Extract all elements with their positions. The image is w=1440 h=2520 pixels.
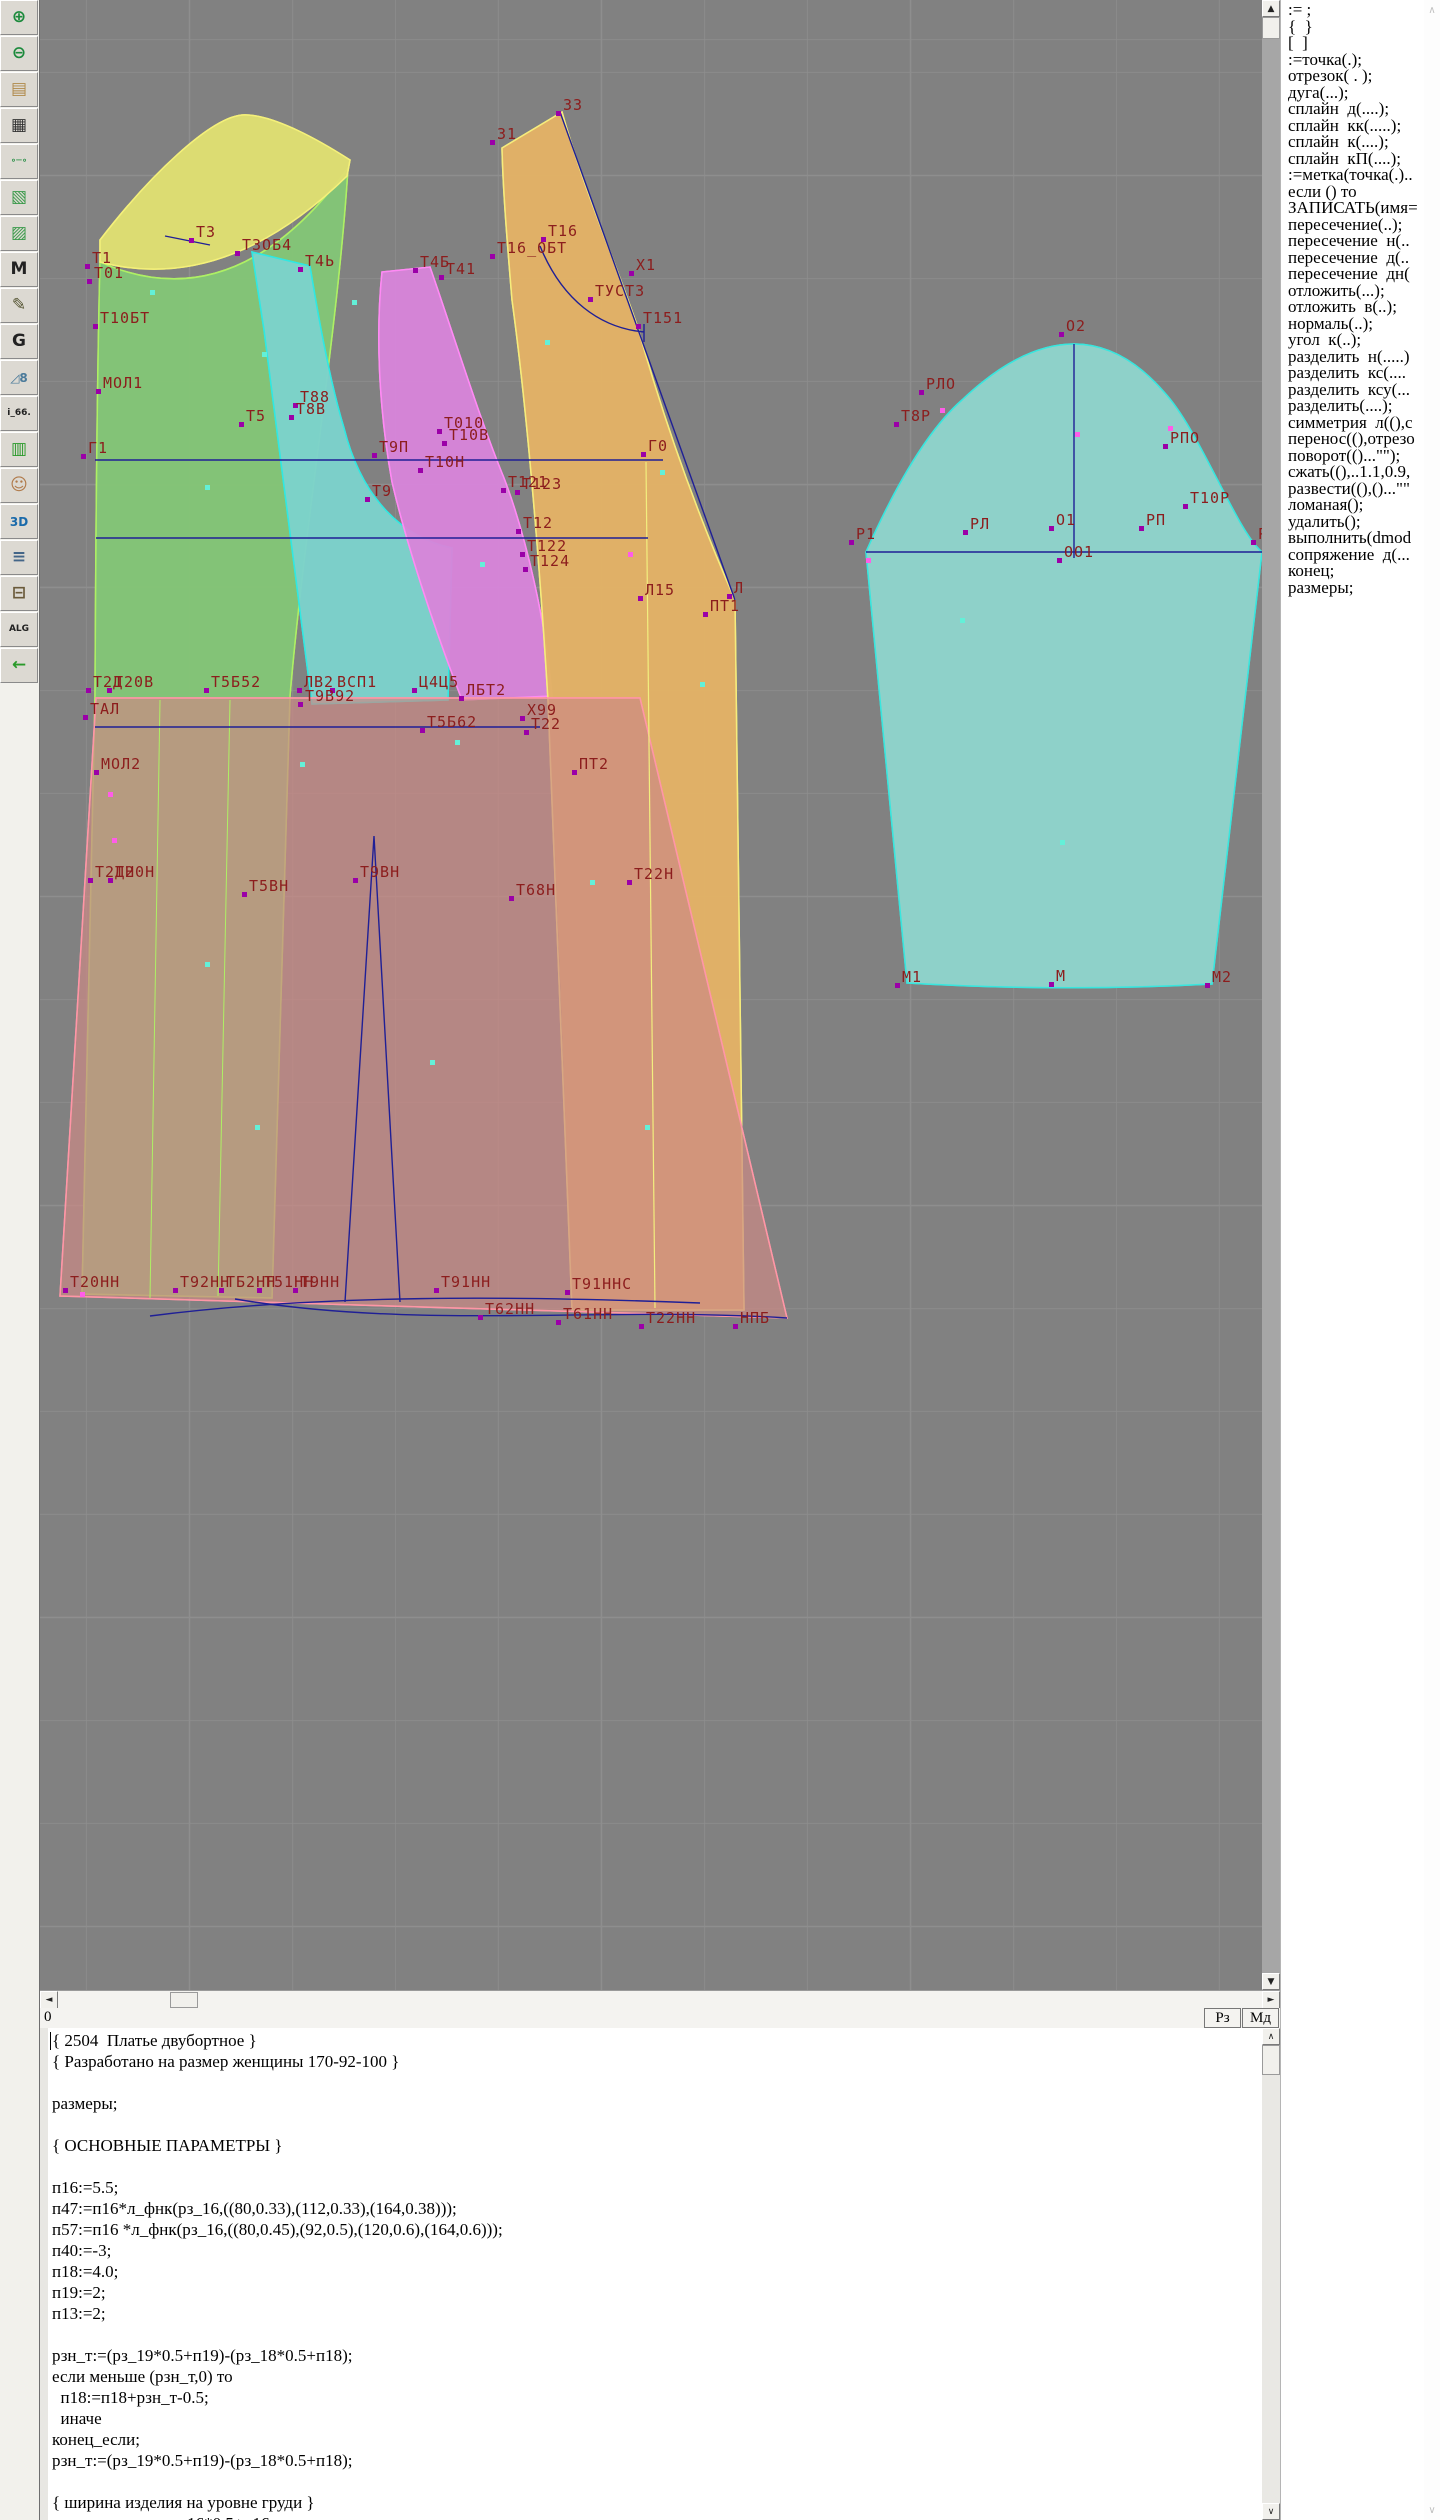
- pattern-point[interactable]: [960, 618, 965, 623]
- status-bar: 0 Рз Мд: [40, 2008, 1280, 2028]
- measure-tool-icon: ∘─∘: [11, 157, 28, 166]
- script-line: [52, 2156, 503, 2177]
- point-label: ТАЛ: [90, 700, 120, 718]
- point-label: Т4Ь: [305, 252, 335, 270]
- pattern-m-icon: M: [11, 261, 28, 278]
- point-label: М2: [1212, 968, 1232, 986]
- pattern-point[interactable]: [83, 715, 88, 720]
- pattern-point[interactable]: [556, 111, 561, 116]
- script-editor[interactable]: { 2504 Платье двубортное }{ Разработано …: [40, 2028, 1262, 2520]
- pattern-point[interactable]: [545, 340, 550, 345]
- point-label: Т16_ОБТ: [497, 239, 567, 257]
- toolbar-pattern-m-button[interactable]: M: [0, 252, 38, 287]
- command-list-panel: := ;{ }[ ]:=точка(.);отрезок( . );дуга(.…: [1280, 0, 1440, 2520]
- pattern-point[interactable]: [509, 896, 514, 901]
- pattern-point[interactable]: [1251, 540, 1256, 545]
- pattern-point[interactable]: [565, 1290, 570, 1295]
- point-label: 33: [563, 96, 583, 114]
- point-label: Т91НН: [441, 1273, 491, 1291]
- point-label: Т20В: [114, 673, 154, 691]
- point-label: Т9ВН: [360, 863, 400, 881]
- pattern-point[interactable]: [94, 770, 99, 775]
- pattern-point[interactable]: [434, 1288, 439, 1293]
- ruler-8-icon: ◿8: [10, 372, 28, 384]
- script-line: рзн_т:=(рз_19*0.5+п19)-(рз_18*0.5+п18);: [52, 2450, 503, 2471]
- pattern-point[interactable]: [523, 567, 528, 572]
- point-label: Т22Н: [634, 865, 674, 883]
- canvas-vscroll-thumb[interactable]: [1262, 17, 1280, 39]
- md-button[interactable]: Мд: [1242, 2008, 1279, 2028]
- pattern-point[interactable]: [112, 838, 117, 843]
- pattern-point[interactable]: [189, 238, 194, 243]
- script-line: [52, 2114, 503, 2135]
- toolbar-zoom-in-button[interactable]: ⊕: [0, 0, 38, 35]
- drawing-canvas[interactable]: Т3Т1Т01Т3ОБ4Т4ЬТ10БТМОЛ1Т5Т88Т8ВГ1Т9ПТ01…: [40, 0, 1262, 1990]
- canvas-scroll-up-icon[interactable]: ▲: [1262, 0, 1280, 17]
- pattern-point[interactable]: [1183, 504, 1188, 509]
- point-label: Г1: [88, 439, 108, 457]
- point-label: Т9В92: [305, 687, 355, 705]
- pattern-point[interactable]: [239, 422, 244, 427]
- pattern-point[interactable]: [418, 468, 423, 473]
- i66-file-icon: i_66.: [7, 409, 31, 418]
- pattern-point[interactable]: [1205, 983, 1210, 988]
- pattern-point[interactable]: [849, 540, 854, 545]
- script-line: { ширина изделия на уровне груди }: [52, 2492, 503, 2513]
- point-label: МОЛ2: [101, 755, 141, 773]
- editor-scroll-down-icon[interactable]: ∨: [1262, 2503, 1280, 2520]
- pattern-point[interactable]: [262, 352, 267, 357]
- script-line: [52, 2471, 503, 2492]
- toolbar-exit-button[interactable]: ←: [0, 648, 38, 683]
- alg-file-icon: ALG: [9, 625, 29, 634]
- pattern-point[interactable]: [455, 740, 460, 745]
- pattern-point[interactable]: [353, 878, 358, 883]
- point-label: Х1: [636, 256, 656, 274]
- point-label: М1: [902, 968, 922, 986]
- pattern-point[interactable]: [1059, 332, 1064, 337]
- pattern-point[interactable]: [93, 324, 98, 329]
- pattern-point[interactable]: [1049, 526, 1054, 531]
- pattern-point[interactable]: [638, 596, 643, 601]
- point-label: Т22: [531, 715, 561, 733]
- pattern-point[interactable]: [297, 688, 302, 693]
- pattern-point[interactable]: [352, 300, 357, 305]
- pattern-point[interactable]: [150, 290, 155, 295]
- script-line: { Разработано на размер женщины 170-92-1…: [52, 2051, 503, 2072]
- pattern-point[interactable]: [866, 558, 871, 563]
- point-label: Т5ВН: [249, 877, 289, 895]
- script-line: если меньше (рзн_т,0) то: [52, 2366, 503, 2387]
- commands-scroll-up-icon[interactable]: ∧: [1424, 2, 1440, 18]
- point-label: Т12: [523, 514, 553, 532]
- pattern-point[interactable]: [439, 275, 444, 280]
- canvas-hscrollbar[interactable]: ◄ ►: [40, 1990, 1280, 2008]
- point-label: Л15: [645, 581, 675, 599]
- pattern-point[interactable]: [641, 452, 646, 457]
- size-table-icon: ▥: [11, 441, 27, 458]
- command-list: := ;{ }[ ]:=точка(.);отрезок( . );дуга(.…: [1281, 0, 1440, 596]
- canvas-scroll-down-icon[interactable]: ▼: [1262, 1973, 1280, 1990]
- toolbar-i66-file-button[interactable]: i_66.: [0, 396, 38, 431]
- pattern-point[interactable]: [588, 297, 593, 302]
- point-label: Т61НН: [563, 1305, 613, 1323]
- command-list-scrollbar[interactable]: ∧ ∨: [1424, 0, 1440, 2520]
- pattern-point[interactable]: [627, 880, 632, 885]
- script-line: п13:=2;: [52, 2303, 503, 2324]
- pattern-point[interactable]: [205, 485, 210, 490]
- point-label: Т41: [446, 260, 476, 278]
- canvas-vscrollbar[interactable]: ▲ ▼: [1262, 0, 1280, 1990]
- pattern-point[interactable]: [1060, 840, 1065, 845]
- pattern-point[interactable]: [86, 688, 91, 693]
- pattern-point[interactable]: [645, 1125, 650, 1130]
- pattern-point[interactable]: [572, 770, 577, 775]
- canvas-scroll-left-icon[interactable]: ◄: [40, 1991, 58, 2009]
- point-label: Т62НН: [485, 1300, 535, 1318]
- pattern-point[interactable]: [628, 552, 633, 557]
- drafting-tools-icon: ✎: [12, 297, 26, 314]
- pattern-point[interactable]: [516, 529, 521, 534]
- point-label: ТУСТ3: [595, 282, 645, 300]
- script-line: { 2504 Платье двубортное }: [52, 2030, 503, 2051]
- point-label: Л: [734, 579, 744, 597]
- pattern-point[interactable]: [963, 530, 968, 535]
- script-line: п57:=п16 *л_фнк(рз_16,((80,0.45),(92,0.5…: [52, 2219, 503, 2240]
- toolbar-size-table-button[interactable]: ▥: [0, 432, 38, 467]
- point-label: М: [1056, 967, 1066, 985]
- pattern-point[interactable]: [80, 1292, 85, 1297]
- pattern-point[interactable]: [442, 441, 447, 446]
- pattern-point[interactable]: [639, 1324, 644, 1329]
- point-label: Т10БТ: [100, 309, 150, 327]
- toolbar-pattern-outline-button[interactable]: ▨: [0, 216, 38, 251]
- pattern-point[interactable]: [437, 429, 442, 434]
- toolbar-ruler-8-button[interactable]: ◿8: [0, 360, 38, 395]
- script-line: иначе: [52, 2408, 503, 2429]
- left-toolbar: ⊕⊖▤▦∘─∘▧▨M✎G◿8i_66.▥☺3D≡⊟ALG←: [0, 0, 40, 2520]
- point-label: Т8Р: [901, 407, 931, 425]
- pattern-point[interactable]: [420, 728, 425, 733]
- point-label: Т9П: [379, 438, 409, 456]
- pattern-point[interactable]: [1139, 526, 1144, 531]
- script-line: [52, 2324, 503, 2345]
- point-label: Т10Н: [425, 453, 465, 471]
- point-label: РЛ: [970, 515, 990, 533]
- point-label: О2: [1066, 317, 1086, 335]
- pattern-point[interactable]: [81, 454, 86, 459]
- script-line: [52, 2072, 503, 2093]
- point-label: ОО1: [1064, 543, 1094, 561]
- point-label: Т20Н: [115, 863, 155, 881]
- books-icon: ⊟: [12, 585, 26, 602]
- toolbar-measure-tool-button[interactable]: ∘─∘: [0, 144, 38, 179]
- three-d-icon: 3D: [10, 516, 28, 528]
- pattern-point[interactable]: [1049, 982, 1054, 987]
- pattern-point[interactable]: [413, 268, 418, 273]
- point-label: РП: [1146, 511, 1166, 529]
- pattern-point[interactable]: [242, 892, 247, 897]
- pattern-point[interactable]: [629, 271, 634, 276]
- canvas-scroll-right-icon[interactable]: ►: [1262, 1991, 1280, 2009]
- pattern-point[interactable]: [919, 390, 924, 395]
- script-line: п19:=2;: [52, 2282, 503, 2303]
- pattern-point[interactable]: [372, 453, 377, 458]
- pattern-point[interactable]: [894, 422, 899, 427]
- script-line: п18:=4.0;: [52, 2261, 503, 2282]
- toolbar-three-d-button[interactable]: 3D: [0, 504, 38, 539]
- toolbar-grid-button[interactable]: ▦: [0, 108, 38, 143]
- script-line: { ОСНОВНЫЕ ПАРАМЕТРЫ }: [52, 2135, 503, 2156]
- pattern-point[interactable]: [520, 716, 525, 721]
- pattern-point[interactable]: [895, 983, 900, 988]
- point-label: ПТ1: [710, 597, 740, 615]
- pattern-point[interactable]: [235, 251, 240, 256]
- pattern-point[interactable]: [255, 1125, 260, 1130]
- point-label: Т9: [372, 482, 392, 500]
- sketch-map-icon: ▧: [11, 189, 27, 206]
- pattern-point[interactable]: [96, 389, 101, 394]
- script-line: рзн_т:=(рз_19*0.5+п19)-(рз_18*0.5+п18);: [52, 2345, 503, 2366]
- point-label: ПТ2: [579, 755, 609, 773]
- command-item[interactable]: размеры;: [1281, 580, 1440, 597]
- pattern-point[interactable]: [490, 254, 495, 259]
- pattern-point[interactable]: [108, 792, 113, 797]
- grid-icon: ▦: [11, 117, 27, 134]
- pattern-point[interactable]: [478, 1315, 483, 1320]
- point-label: Т01: [94, 264, 124, 282]
- point-label: О1: [1056, 511, 1076, 529]
- point-label: Т5: [246, 407, 266, 425]
- point-label: Г0: [648, 437, 668, 455]
- point-label: Т20НН: [70, 1273, 120, 1291]
- point-label: Т22НН: [646, 1309, 696, 1327]
- zoom-in-icon: ⊕: [12, 9, 26, 26]
- point-label: Т68Н: [516, 881, 556, 899]
- pattern-point[interactable]: [636, 324, 641, 329]
- script-line: п16:=5.5;: [52, 2177, 503, 2198]
- hatch-sleeve: [866, 344, 1262, 988]
- pattern-drawing: Т3Т1Т01Т3ОБ4Т4ЬТ10БТМОЛ1Т5Т88Т8ВГ1Т9ПТ01…: [40, 0, 1262, 1990]
- editor-vscroll-thumb[interactable]: [1262, 2045, 1280, 2075]
- pattern-point[interactable]: [88, 878, 93, 883]
- pattern-point[interactable]: [490, 140, 495, 145]
- point-label: Ц4Ц5: [419, 673, 459, 691]
- point-label: Р1: [856, 525, 876, 543]
- point-label: НПБ: [740, 1309, 770, 1327]
- pattern-point[interactable]: [590, 880, 595, 885]
- point-label: Т151: [643, 309, 683, 327]
- commands-scroll-down-icon[interactable]: ∨: [1424, 2502, 1440, 2518]
- point-label: Т16: [548, 222, 578, 240]
- portrait-icon: ☺: [10, 477, 28, 494]
- rz-button[interactable]: Рз: [1204, 2008, 1241, 2028]
- pattern-point[interactable]: [430, 1060, 435, 1065]
- point-label: ЛБТ2: [466, 681, 506, 699]
- pattern-point[interactable]: [524, 730, 529, 735]
- g-document-icon: G: [12, 333, 26, 350]
- point-label: Т3ОБ4: [242, 236, 292, 254]
- toolbar-text-list-button[interactable]: ≡: [0, 540, 38, 575]
- toolbar-zoom-out-button[interactable]: ⊖: [0, 36, 38, 71]
- pattern-point[interactable]: [556, 1320, 561, 1325]
- pattern-outline-icon: ▨: [11, 225, 27, 242]
- point-label: Т92НН: [180, 1273, 230, 1291]
- pattern-sheet-icon: ▤: [11, 81, 27, 98]
- editor-gutter: [40, 2028, 48, 2520]
- text-list-icon: ≡: [12, 549, 26, 566]
- script-line: п40:=-3;: [52, 2240, 503, 2261]
- point-label: МОЛ1: [103, 374, 143, 392]
- point-label: Т9НН: [300, 1273, 340, 1291]
- toolbar-books-button[interactable]: ⊟: [0, 576, 38, 611]
- pattern-point[interactable]: [501, 488, 506, 493]
- pattern-point[interactable]: [940, 408, 945, 413]
- pattern-point[interactable]: [1075, 432, 1080, 437]
- pattern-point[interactable]: [520, 552, 525, 557]
- script-line: п47:=п16*л_фнк(рз_16,((80,0.33),(112,0.3…: [52, 2198, 503, 2219]
- pattern-point[interactable]: [1057, 558, 1062, 563]
- exit-icon: ←: [12, 657, 26, 674]
- pattern-point[interactable]: [703, 612, 708, 617]
- pattern-point[interactable]: [173, 1288, 178, 1293]
- point-label: Т91ННС: [572, 1275, 632, 1293]
- pattern-point[interactable]: [85, 264, 90, 269]
- status-value: 0: [44, 2009, 52, 2026]
- point-label: Т5Б62: [427, 713, 477, 731]
- script-line: конец_если;: [52, 2429, 503, 2450]
- point-label: Т10Р: [1190, 489, 1230, 507]
- pattern-point[interactable]: [289, 415, 294, 420]
- point-label: Т10В: [449, 426, 489, 444]
- pattern-point[interactable]: [733, 1324, 738, 1329]
- point-label: Т124: [530, 552, 570, 570]
- pattern-point[interactable]: [459, 696, 464, 701]
- pattern-point[interactable]: [300, 762, 305, 767]
- point-label: Т123: [522, 475, 562, 493]
- script-line: п18:=п18+рзн_т-0.5;: [52, 2387, 503, 2408]
- pattern-point[interactable]: [700, 682, 705, 687]
- pattern-point[interactable]: [205, 962, 210, 967]
- toolbar-portrait-button[interactable]: ☺: [0, 468, 38, 503]
- canvas-hscroll-thumb[interactable]: [170, 1992, 198, 2008]
- pattern-point[interactable]: [660, 470, 665, 475]
- script-line: шир_изд_в:=рз_16*0.5+п16 ;: [52, 2513, 503, 2520]
- pattern-point[interactable]: [480, 562, 485, 567]
- editor-scroll-up-icon[interactable]: ∧: [1262, 2028, 1280, 2045]
- pattern-point[interactable]: [87, 279, 92, 284]
- text-cursor: [50, 2032, 51, 2050]
- toolbar-sketch-map-button[interactable]: ▧: [0, 180, 38, 215]
- point-label: 31: [497, 125, 517, 143]
- point-label: РПО: [1170, 429, 1200, 447]
- point-label: РЛО: [926, 375, 956, 393]
- point-label: Т8В: [296, 400, 326, 418]
- pattern-point[interactable]: [412, 688, 417, 693]
- pattern-point[interactable]: [63, 1288, 68, 1293]
- editor-vscrollbar[interactable]: ∧ ∨: [1262, 2028, 1280, 2520]
- pattern-point[interactable]: [365, 497, 370, 502]
- pattern-point[interactable]: [1163, 444, 1168, 449]
- pattern-point[interactable]: [298, 267, 303, 272]
- pattern-point[interactable]: [298, 702, 303, 707]
- point-label: Т5Б52: [211, 673, 261, 691]
- toolbar-pattern-sheet-button[interactable]: ▤: [0, 72, 38, 107]
- zoom-out-icon: ⊖: [12, 45, 26, 62]
- toolbar-drafting-tools-button[interactable]: ✎: [0, 288, 38, 323]
- pattern-point[interactable]: [204, 688, 209, 693]
- point-label: Т3: [196, 223, 216, 241]
- toolbar-g-document-button[interactable]: G: [0, 324, 38, 359]
- toolbar-alg-file-button[interactable]: ALG: [0, 612, 38, 647]
- script-line: размеры;: [52, 2093, 503, 2114]
